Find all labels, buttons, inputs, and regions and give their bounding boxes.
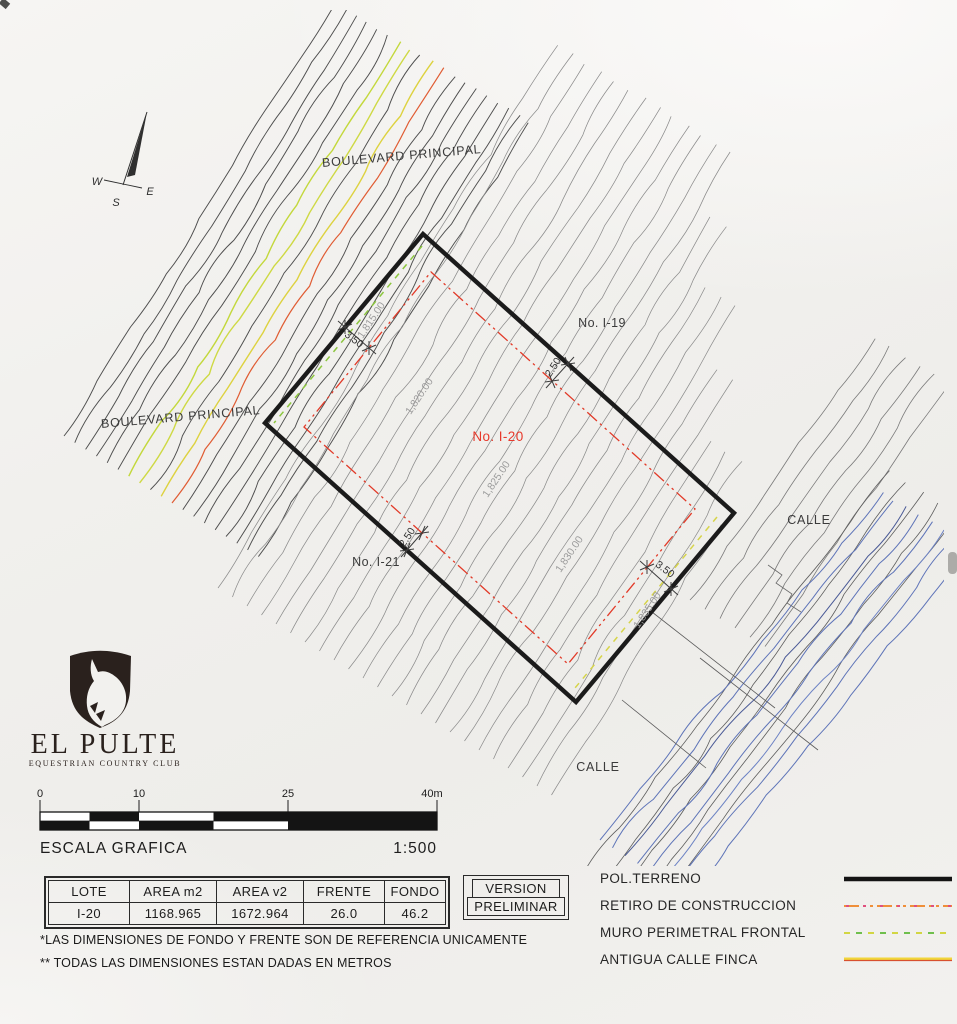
contour-line bbox=[600, 493, 883, 841]
scale-bar-label: ESCALA GRAFICA bbox=[40, 840, 188, 857]
legend-label: POL.TERRENO bbox=[600, 871, 701, 886]
calle-bottom-label: CALLE bbox=[576, 760, 620, 774]
table-header-cell: LOTE bbox=[49, 881, 130, 903]
contour-line bbox=[96, 22, 366, 456]
contour-line bbox=[161, 61, 433, 497]
scale-tick-label: 40m bbox=[421, 788, 442, 800]
table-cell: 46.2 bbox=[385, 903, 446, 925]
table-header-row: LOTE AREA m2 AREA v2 FRENTE FONDO bbox=[49, 881, 446, 903]
legend-label: MURO PERIMETRAL FRONTAL bbox=[600, 925, 806, 940]
contour-line bbox=[86, 16, 357, 450]
legend-item-antigua-calle: ANTIGUA CALLE FINCA bbox=[600, 950, 956, 977]
contour-line bbox=[218, 45, 558, 588]
contour-label: 1,820.00 bbox=[403, 376, 436, 417]
contour-line bbox=[625, 506, 906, 855]
contour-line bbox=[75, 7, 348, 442]
contour-label: 1,830.00 bbox=[553, 534, 586, 575]
table-header-cell: FRENTE bbox=[304, 881, 385, 903]
contour-line bbox=[172, 68, 444, 503]
legend-item-pol-terreno: POL.TERRENO bbox=[600, 869, 956, 896]
contour-line bbox=[248, 115, 520, 550]
scale-tick-label: 10 bbox=[133, 788, 145, 800]
contour-line bbox=[349, 126, 690, 669]
logo-subtitle: EQUESTRIAN COUNTRY CLUB bbox=[29, 759, 182, 768]
contour-line bbox=[580, 471, 890, 880]
legend-label: ANTIGUA CALLE FINCA bbox=[600, 952, 758, 967]
table-row: I-20 1168.965 1672.964 26.0 46.2 bbox=[49, 903, 446, 925]
dashed-line-swatch bbox=[842, 928, 954, 938]
contour-line bbox=[378, 145, 717, 687]
contour-line bbox=[450, 297, 721, 732]
legend-label: RETIRO DE CONSTRUCCION bbox=[600, 898, 796, 913]
site-plan-sheet: 3.50 2.50 2.50 3.50 1,815.00 1,820.00 1,… bbox=[0, 0, 957, 1024]
yellow-red-line-swatch bbox=[842, 955, 954, 965]
table-header-cell: FONDO bbox=[385, 881, 446, 903]
lot-i19-label: No. I-19 bbox=[578, 316, 626, 330]
contour-line bbox=[508, 441, 711, 768]
compass-rose: W E S bbox=[92, 112, 155, 209]
table-header-cell: AREA m2 bbox=[130, 881, 217, 903]
contour-line bbox=[436, 288, 706, 724]
contour-line bbox=[150, 55, 419, 490]
calle-right-label: CALLE bbox=[787, 513, 831, 527]
dim-label-back: 3.50 bbox=[653, 559, 677, 581]
scale-ratio-label: 1:500 bbox=[393, 840, 437, 857]
dash-dot-line-swatch bbox=[842, 901, 954, 911]
table-header-cell: AREA v2 bbox=[217, 881, 304, 903]
contour-line bbox=[705, 346, 889, 609]
contour-line bbox=[407, 217, 710, 705]
boulevard-principal-left-label: BOULEVARD PRINCIPAL bbox=[100, 403, 261, 431]
contour-line bbox=[479, 370, 717, 750]
scan-artifact bbox=[948, 552, 957, 574]
contour-line bbox=[638, 515, 919, 864]
solid-black-line-swatch bbox=[842, 874, 954, 884]
legend: POL.TERRENO RETIRO DE CONSTRUCCION MURO … bbox=[600, 869, 956, 977]
contour-line bbox=[107, 29, 377, 463]
lot-i21-label: No. I-21 bbox=[352, 555, 400, 569]
contour-line bbox=[421, 227, 726, 714]
footnotes: *LAS DIMENSIONES DE FONDO Y FRENTE SON D… bbox=[40, 933, 600, 979]
contour-lines-layer bbox=[64, 1, 957, 922]
legend-item-muro: MURO PERIMETRAL FRONTAL bbox=[600, 923, 956, 950]
version-title: VERSION bbox=[472, 879, 560, 897]
club-logo: EL PULTE EQUESTRIAN COUNTRY CLUB bbox=[29, 651, 182, 768]
compass-west-label: W bbox=[92, 176, 104, 188]
contour-line bbox=[552, 525, 722, 795]
table-cell: 1168.965 bbox=[130, 903, 217, 925]
scale-bar: 0 10 25 40m ESCALA GRAFICA 1:500 bbox=[37, 788, 443, 857]
legend-item-retiro: RETIRO DE CONSTRUCCION bbox=[600, 896, 956, 923]
compass-south-label: S bbox=[112, 197, 120, 209]
contour-line bbox=[597, 483, 905, 891]
contour-label: 1,835.00 bbox=[631, 590, 664, 631]
contour-line bbox=[226, 103, 498, 536]
contour-line bbox=[614, 492, 924, 901]
version-box: VERSION PRELIMINAR bbox=[463, 875, 569, 920]
lot-i20-label: No. I-20 bbox=[472, 429, 523, 444]
compass-east-label: E bbox=[146, 186, 154, 198]
footnote: ** TODAS LAS DIMENSIONES ESTAN DADAS EN … bbox=[40, 956, 600, 970]
logo-title: EL PULTE bbox=[31, 729, 180, 760]
version-value: PRELIMINAR bbox=[467, 897, 565, 916]
contour-line bbox=[334, 116, 671, 660]
table-cell: 1672.964 bbox=[217, 903, 304, 925]
contour-line bbox=[64, 1, 337, 436]
lot-data-table: LOTE AREA m2 AREA v2 FRENTE FONDO I-20 1… bbox=[44, 876, 450, 929]
dim-label-side-bottom: 2.50 bbox=[397, 525, 418, 549]
table-cell: 26.0 bbox=[304, 903, 385, 925]
scale-tick-label: 25 bbox=[282, 788, 294, 800]
contour-line bbox=[523, 452, 725, 777]
table-cell: I-20 bbox=[49, 903, 130, 925]
contour-line bbox=[613, 501, 894, 848]
scale-tick-label: 0 bbox=[37, 788, 43, 800]
footnote: *LAS DIMENSIONES DE FONDO Y FRENTE SON D… bbox=[40, 933, 600, 947]
